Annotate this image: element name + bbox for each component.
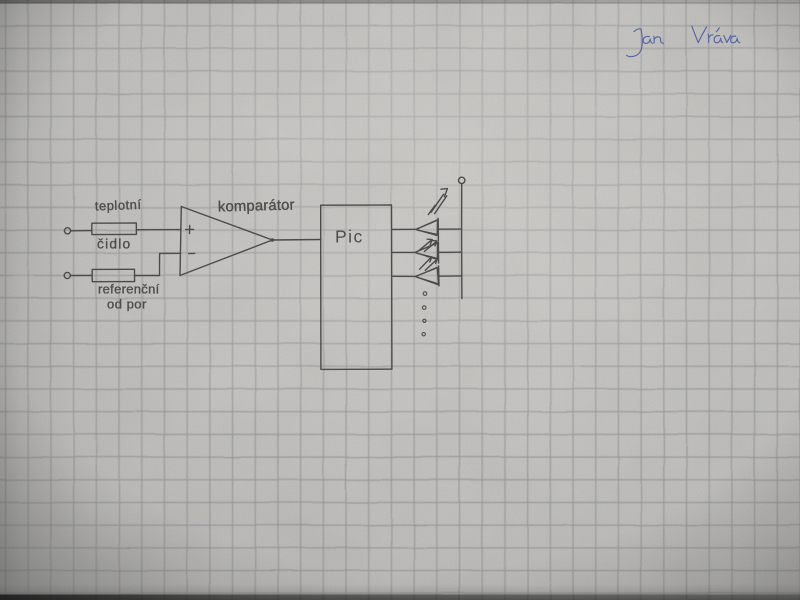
svg-text:Pic: Pic — [335, 227, 364, 247]
svg-text:od por: od por — [107, 297, 147, 312]
svg-text:čidlo: čidlo — [97, 237, 131, 252]
svg-text:teplotní: teplotní — [95, 197, 142, 214]
svg-text:komparátor: komparátor — [218, 197, 295, 215]
svg-text:referenční: referenční — [98, 282, 160, 297]
